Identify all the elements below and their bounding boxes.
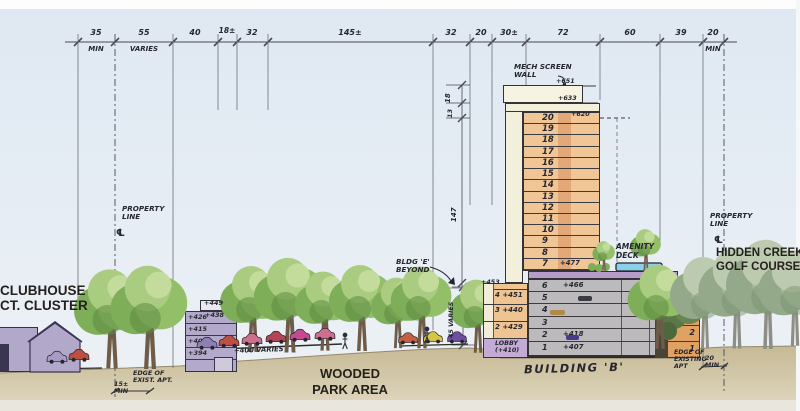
ground-elevation-note: +400 VARIES: [234, 346, 284, 356]
vertical-dim-18: 18: [444, 93, 452, 103]
elev-438: +438: [205, 312, 224, 319]
setback-20-min: 20MIN: [705, 355, 719, 370]
elev-620: +620: [571, 111, 590, 118]
vertical-dim-13: 13: [447, 109, 454, 118]
elev-651: +651: [556, 78, 575, 85]
vertical-dim-45-varies: 45 VARIES: [448, 302, 455, 338]
golf-course-label: HIDDEN CREEKGOLF COURSE: [716, 246, 800, 274]
clubhouse-label: CLUBHOUSECT. CLUSTER: [0, 283, 88, 313]
building-b-label: BUILDING 'B': [524, 361, 625, 377]
dim-label: 32: [232, 28, 272, 37]
dim-sub-label: MIN: [76, 45, 116, 53]
dim-sub-label: VARIES: [124, 45, 164, 53]
elev-633: +633: [558, 95, 577, 102]
dim-label: 60: [610, 28, 650, 37]
site-section-drawing: 20 19 18 17 16 15 14 13 12 11 10 9 8 7 6…: [0, 0, 800, 411]
setback-15-min: 15±MIN: [114, 381, 128, 396]
elev-449: +449: [204, 300, 223, 307]
bldg-e-label: BLDG 'E'BEYOND: [396, 258, 430, 275]
elev-477: +477: [560, 260, 580, 268]
dim-label: 72: [543, 28, 583, 37]
dim-label: 20: [693, 28, 733, 37]
edge-exist-apt-right: EDGE OFEXISTINGAPT: [674, 349, 707, 370]
centerline-symbol: ℄: [116, 228, 125, 240]
centerline-symbol: ℄: [714, 235, 723, 247]
edge-exist-apt-left: EDGE OFEXIST. APT.: [133, 370, 173, 385]
property-line-label-left: PROPERTYLINE: [122, 205, 164, 222]
vertical-dim-147: 147: [450, 207, 458, 222]
elev-453: +453: [481, 279, 500, 286]
amenity-deck-label: AMENITYDECK: [616, 243, 654, 260]
dim-label: 30±: [489, 28, 529, 37]
dim-label: 145±: [330, 28, 370, 37]
property-line-label-right: PROPERTYLINE: [710, 212, 752, 229]
dim-label: 55: [124, 28, 164, 37]
labels-layer: 35 MIN 55 VARIES 40 18± 32 145± 32 20 30…: [0, 0, 800, 411]
dim-sub-label: MIN: [693, 45, 733, 53]
wooded-park-label: WOODEDPARK AREA: [295, 366, 405, 398]
dim-label: 35: [76, 28, 116, 37]
